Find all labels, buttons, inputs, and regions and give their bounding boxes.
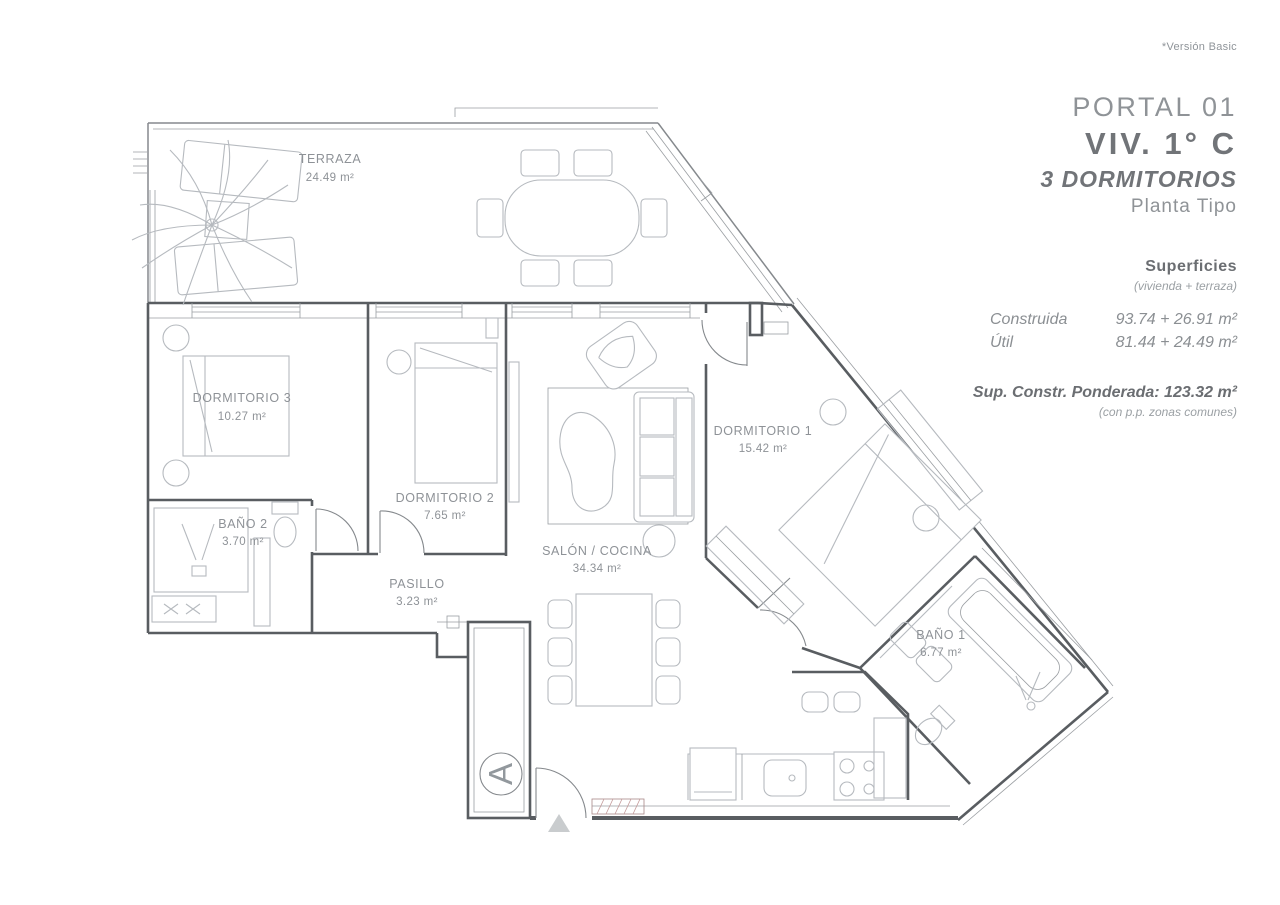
entrance-arrow bbox=[548, 814, 570, 832]
window-salon-a bbox=[512, 303, 572, 318]
core-letter: A bbox=[482, 763, 519, 785]
room-area-dormitorio-3: 10.27 m² bbox=[218, 411, 267, 423]
title-block: *Versión Basic PORTAL 01 VIV. 1° C 3 DOR… bbox=[950, 0, 1237, 905]
bar-stool bbox=[834, 692, 860, 712]
salon-furniture bbox=[548, 317, 694, 706]
room-label-salon-cocina: SALÓN / COCINA bbox=[542, 543, 652, 558]
surfaces-table: Construida 93.74 + 26.91 m² Útil 81.44 +… bbox=[990, 308, 1237, 354]
coffee-table bbox=[560, 412, 615, 511]
bar-stool bbox=[802, 692, 828, 712]
floor-plan-sheet: A bbox=[0, 0, 1280, 905]
terrace-furniture bbox=[132, 140, 667, 305]
surface-row-util: Útil 81.44 + 24.49 m² bbox=[990, 331, 1237, 354]
weighted-area: Sup. Constr. Ponderada: 123.32 m² bbox=[973, 384, 1237, 402]
surface-row-construida: Construida 93.74 + 26.91 m² bbox=[990, 308, 1237, 331]
door-dorm2 bbox=[380, 511, 424, 553]
dining-set bbox=[548, 594, 680, 706]
unit-title: VIV. 1° C bbox=[1085, 126, 1237, 162]
armchair bbox=[583, 317, 661, 392]
room-area-salon-cocina: 34.34 m² bbox=[573, 563, 622, 575]
dorm2-furniture bbox=[387, 318, 519, 502]
surface-value: 93.74 + 26.91 m² bbox=[1116, 308, 1237, 331]
room-label-bano-2: BAÑO 2 bbox=[218, 517, 267, 531]
room-area-dormitorio-2: 7.65 m² bbox=[424, 510, 466, 522]
room-label-dormitorio-2: DORMITORIO 2 bbox=[396, 491, 495, 505]
surface-label: Construida bbox=[990, 308, 1067, 331]
room-area-terraza: 24.49 m² bbox=[306, 172, 355, 184]
side-table bbox=[205, 201, 249, 240]
window-band bbox=[192, 303, 690, 318]
room-label-dormitorio-1: DORMITORIO 1 bbox=[714, 424, 813, 438]
version-note: *Versión Basic bbox=[1162, 41, 1237, 53]
palm-tree bbox=[132, 140, 292, 305]
door-bath1 bbox=[758, 578, 806, 646]
plan-type: Planta Tipo bbox=[1131, 196, 1237, 218]
core-shaft: A bbox=[480, 753, 522, 795]
room-label-pasillo: PASILLO bbox=[389, 577, 444, 591]
door-dorm1 bbox=[702, 320, 788, 366]
terrace-dining-set bbox=[477, 150, 667, 286]
weighted-area-note: (con p.p. zonas comunes) bbox=[1099, 405, 1237, 419]
portal-title: PORTAL 01 bbox=[1072, 92, 1237, 123]
bedrooms-subtitle: 3 DORMITORIOS bbox=[1040, 166, 1237, 193]
window-dorm2 bbox=[376, 303, 462, 318]
sofa bbox=[634, 392, 694, 522]
room-label-terraza: TERRAZA bbox=[299, 152, 362, 166]
door-hall-bath2 bbox=[316, 509, 358, 551]
room-area-bano-2: 3.70 m² bbox=[222, 536, 264, 548]
window-salon-b bbox=[600, 303, 690, 318]
surface-label: Útil bbox=[990, 331, 1013, 354]
room-label-dormitorio-3: DORMITORIO 3 bbox=[193, 391, 292, 405]
sink bbox=[764, 760, 806, 796]
surface-value: 81.44 + 24.49 m² bbox=[1116, 331, 1237, 354]
surfaces-subheading: (vivienda + terraza) bbox=[1134, 279, 1237, 293]
room-area-dormitorio-1: 15.42 m² bbox=[739, 443, 788, 455]
window-dorm3 bbox=[192, 303, 300, 318]
entrance-door bbox=[536, 768, 586, 818]
kitchen bbox=[688, 692, 906, 800]
room-area-pasillo: 3.23 m² bbox=[396, 596, 438, 608]
dorm3-furniture bbox=[163, 325, 289, 486]
surfaces-heading: Superficies bbox=[1145, 258, 1237, 276]
entrance-mat bbox=[592, 799, 644, 814]
terrace-railing bbox=[133, 108, 794, 312]
sun-lounger bbox=[174, 237, 298, 295]
